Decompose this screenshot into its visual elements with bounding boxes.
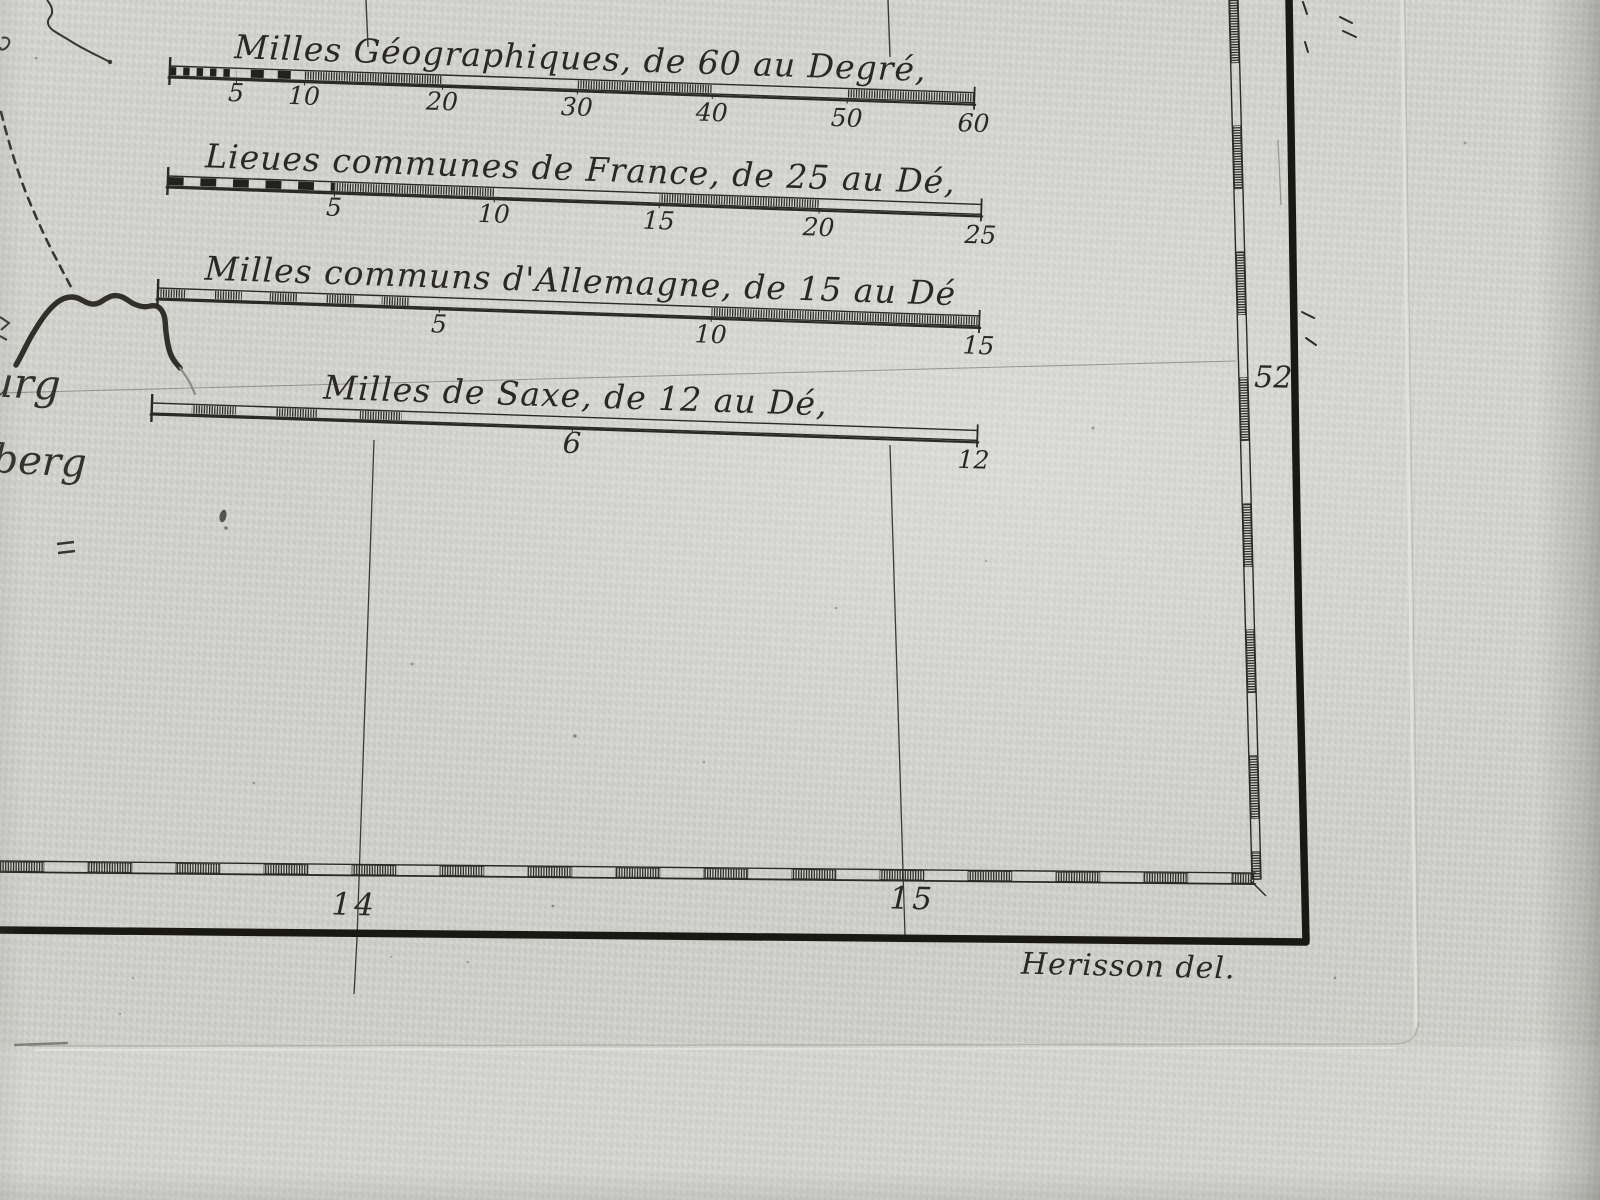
scale-bar-lieues-france: Lieues communes de France, de 25 au Dé, …	[164, 135, 998, 250]
edge-glyph-top	[0, 38, 9, 50]
bar-right-cap	[977, 424, 978, 447]
river-fading-tail	[180, 368, 195, 394]
longitude-label-15: 15	[889, 880, 935, 917]
tick-label: 10	[694, 319, 727, 349]
bar-right-cap	[974, 87, 975, 110]
tick-label: 20	[425, 86, 459, 116]
tick-label: 10	[477, 199, 510, 229]
equals-mark	[57, 542, 75, 553]
graduated-border-bottom	[0, 861, 1256, 884]
boundary-dashed-line	[1, 112, 71, 287]
bar-left-cap	[151, 394, 152, 422]
tick-label: 5	[228, 78, 245, 108]
map-frame	[0, 0, 1306, 942]
tick-label: 40	[694, 97, 728, 127]
frame-margin-ticks	[1302, 2, 1356, 345]
scale-bar-milles-saxe: Milles de Saxe, de 12 au Dé, 6 12	[149, 362, 992, 475]
tick-label: 30	[560, 92, 593, 122]
engraver-signature: Herisson del.	[1020, 947, 1236, 987]
tick-label: 5	[326, 193, 343, 223]
tick-label: 15	[962, 330, 995, 360]
stream-line	[47, 0, 110, 62]
tick-label: 6	[562, 426, 582, 461]
bar-left-cap	[167, 167, 168, 195]
bar-right-cap	[979, 310, 980, 333]
bar-left-cap	[157, 279, 158, 307]
bar-left-cap	[169, 57, 170, 85]
tick-label: 15	[642, 206, 675, 236]
place-name-fragment-urg: urg	[0, 357, 62, 410]
latitude-label: 52	[1254, 360, 1293, 396]
tick-label: 20	[801, 212, 835, 242]
tick-label: 25	[963, 220, 997, 250]
tick-label: 12	[957, 445, 990, 475]
frame-right	[1289, 0, 1306, 940]
plate-scratch	[1278, 140, 1281, 205]
tick-label: 60	[957, 108, 990, 138]
antique-map-photo: Milles Géographiques, de 60 au Degré, 5 …	[0, 0, 1600, 1200]
tick-label: 10	[288, 81, 321, 111]
graduated-border-corner-miter	[1250, 880, 1266, 896]
longitude-label-14: 14	[331, 886, 377, 923]
edge-glyph-mid	[0, 317, 9, 340]
meridian-15	[890, 445, 905, 936]
bar-right-cap	[981, 198, 982, 221]
tick-label: 50	[830, 103, 863, 133]
map-engraving: Milles Géographiques, de 60 au Degré, 5 …	[0, 0, 1600, 1200]
scale-bar-milles-allemagne: Milles communs d'Allemagne, de 15 au Dé …	[155, 247, 997, 361]
scale-bar-milles-geographiques: Milles Géographiques, de 60 au Degré, 5 …	[167, 25, 992, 138]
frame-bottom	[0, 930, 1306, 942]
place-name-fragment-berg: berg	[0, 436, 88, 487]
tick-label: 5	[430, 309, 447, 339]
graduated-border-right	[1229, 0, 1261, 880]
